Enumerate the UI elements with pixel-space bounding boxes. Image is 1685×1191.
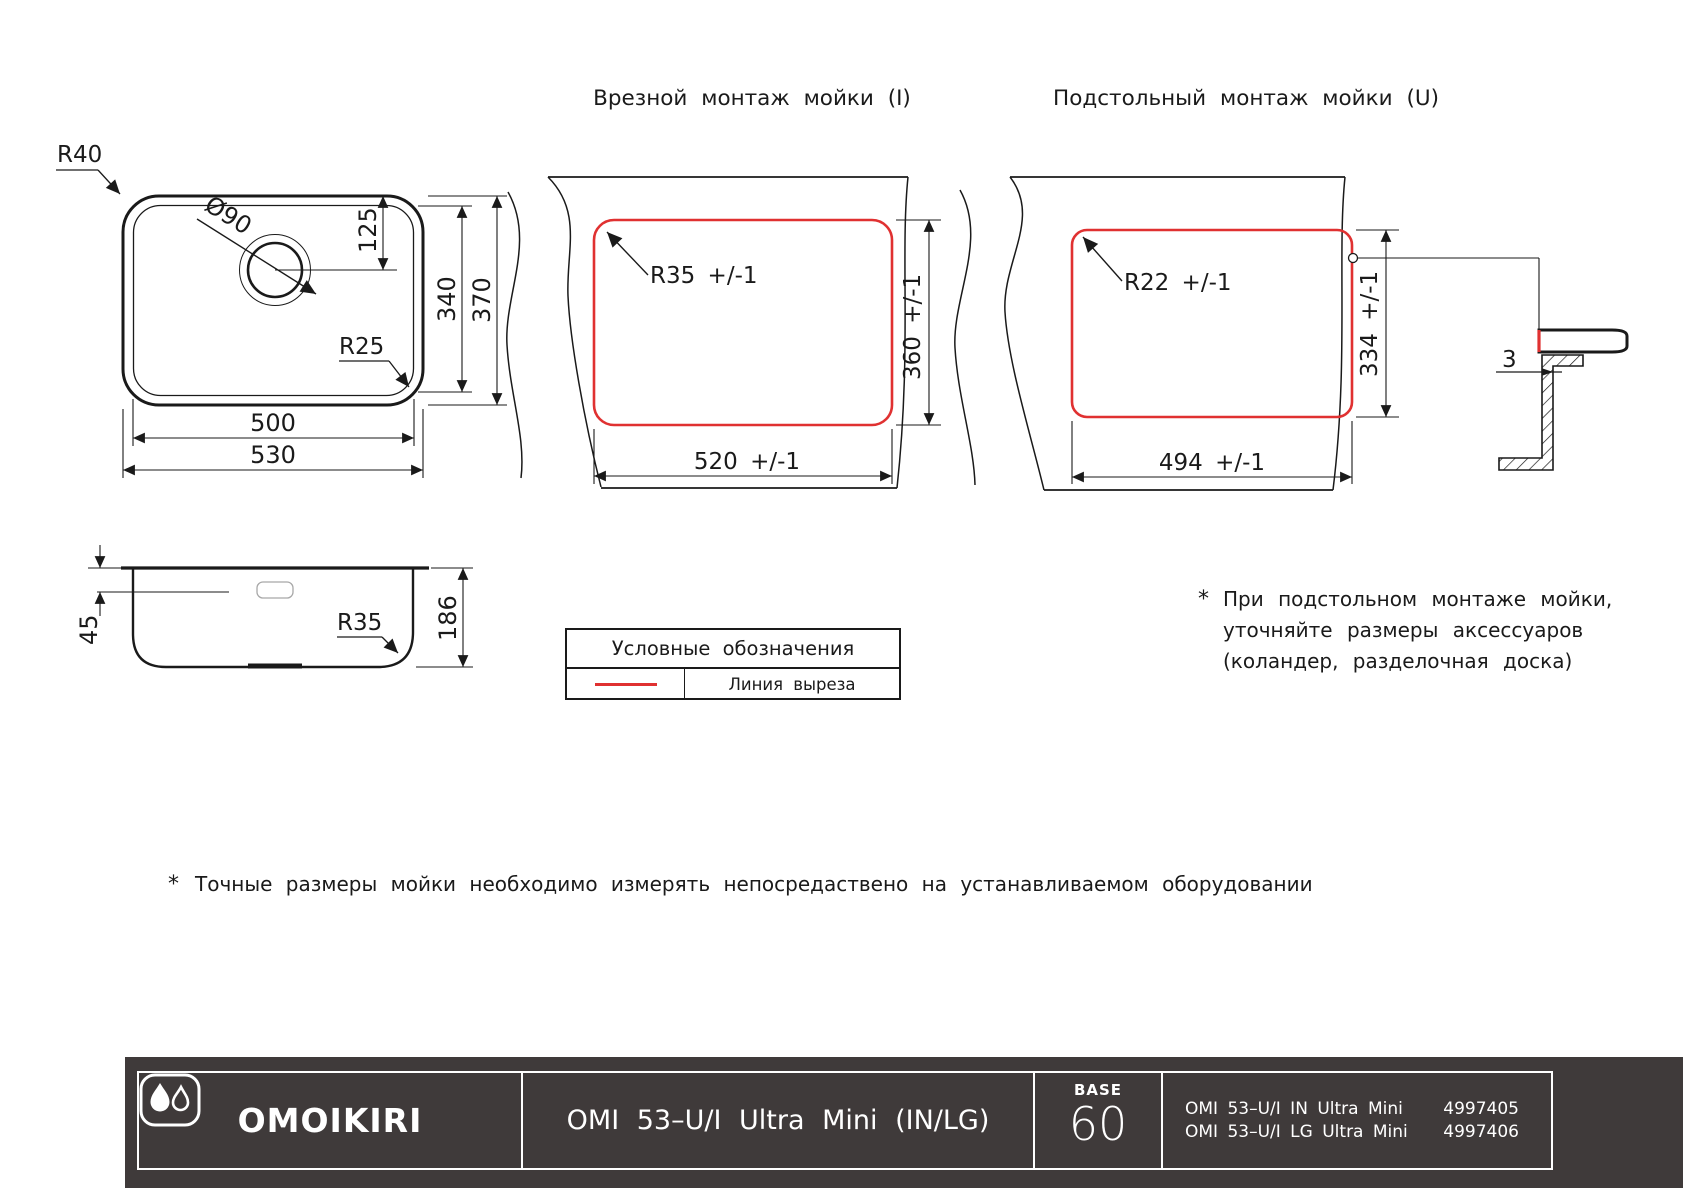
inset-mount-view: Врезной монтаж мойки (I) R35 +/-1 360 +/… (507, 86, 941, 488)
variant-code: 4997405 (1443, 1098, 1519, 1121)
dim-d90: Ø90 (200, 190, 257, 240)
plan-view: Ø90 125 340 370 R40 R25 (56, 142, 507, 478)
under-mount-view: Подстольный монтаж мойки (U) R22 +/-1 33… (955, 86, 1539, 490)
dim-186: 186 (434, 595, 462, 641)
footer-table: OMOIKIRI OMI 53–U/I Ultra Mini (IN/LG) B… (137, 1071, 1553, 1170)
measure-note-text: Точные размеры мойки необходимо измерять… (195, 872, 1313, 897)
dim-500: 500 (250, 409, 296, 437)
variant-name: OMI 53–U/I IN Ultra Mini (1185, 1098, 1403, 1121)
dim-340: 340 (433, 276, 461, 322)
overflow-hole (257, 582, 293, 598)
footer-bar: OMOIKIRI OMI 53–U/I Ultra Mini (IN/LG) B… (125, 1057, 1683, 1188)
side-view: 45 186 R35 (75, 545, 473, 667)
legend-cut-line-label: Линия выреза (685, 669, 899, 700)
model-name: OMI 53–U/I Ultra Mini (IN/LG) (567, 1105, 990, 1136)
measure-note: * Точные размеры мойки необходимо измеря… (168, 872, 1313, 897)
base-cell: BASE 60 (1035, 1073, 1163, 1168)
model-cell: OMI 53–U/I Ultra Mini (IN/LG) (523, 1073, 1035, 1168)
omoikiri-logo-icon (139, 1073, 201, 1127)
variant-name: OMI 53–U/I LG Ultra Mini (1185, 1121, 1408, 1144)
undermount-note-line3: (коландер, разделочная доска) (1223, 646, 1612, 677)
brand-name: OMOIKIRI (238, 1101, 423, 1140)
countertop-break-line (955, 190, 975, 485)
countertop-section (1539, 330, 1627, 352)
dim-under-width: 494 +/-1 (1159, 450, 1265, 476)
base-value: 60 (1069, 1099, 1128, 1149)
label-r25: R25 (339, 334, 384, 360)
legend-box: Условные обозначения Линия выреза (565, 628, 901, 700)
dim-under-height: 334 +/-1 (1357, 271, 1383, 377)
dim-under-radius: R22 +/-1 (1124, 270, 1232, 296)
variants-cell: OMI 53–U/I IN Ultra Mini 4997405 OMI 53–… (1163, 1073, 1551, 1168)
dim-370: 370 (468, 277, 496, 323)
variant-row: OMI 53–U/I IN Ultra Mini 4997405 (1185, 1098, 1519, 1121)
brand-cell: OMOIKIRI (139, 1073, 523, 1168)
cutout-line-inset (594, 220, 892, 425)
dim-45: 45 (75, 614, 103, 645)
legend-swatch-cell (567, 669, 685, 700)
cut-line-sample (595, 683, 657, 686)
countertop-break-line (507, 192, 522, 478)
legend-title: Условные обозначения (567, 630, 899, 669)
label-r35-side: R35 (337, 610, 382, 636)
label-r40: R40 (57, 142, 102, 168)
note-asterisk: * (168, 872, 179, 897)
variant-row: OMI 53–U/I LG Ultra Mini 4997406 (1185, 1121, 1519, 1144)
dim-530: 530 (250, 441, 296, 469)
dim-inset-height: 360 +/-1 (900, 274, 926, 380)
note-asterisk: * (1198, 584, 1209, 677)
variant-code: 4997406 (1443, 1121, 1519, 1144)
reference-point (1349, 254, 1358, 263)
dim-inset-width: 520 +/-1 (694, 449, 800, 475)
dim-inset-radius: R35 +/-1 (650, 263, 758, 289)
dim-gap-3: 3 (1502, 347, 1517, 373)
undermount-note: * При подстольном монтаже мойки, уточняй… (1198, 584, 1612, 677)
rim-section-detail: 3 (1496, 330, 1627, 470)
datasheet-page: Ø90 125 340 370 R40 R25 (0, 0, 1685, 1191)
undermount-note-line2: уточняйте размеры аксессуаров (1223, 615, 1612, 646)
cutout-line-under (1072, 230, 1352, 417)
under-title: Подстольный монтаж мойки (U) (1053, 86, 1439, 111)
undermount-note-line1: При подстольном монтаже мойки, (1223, 584, 1612, 615)
dim-125: 125 (354, 207, 382, 253)
inset-title: Врезной монтаж мойки (I) (593, 86, 911, 111)
